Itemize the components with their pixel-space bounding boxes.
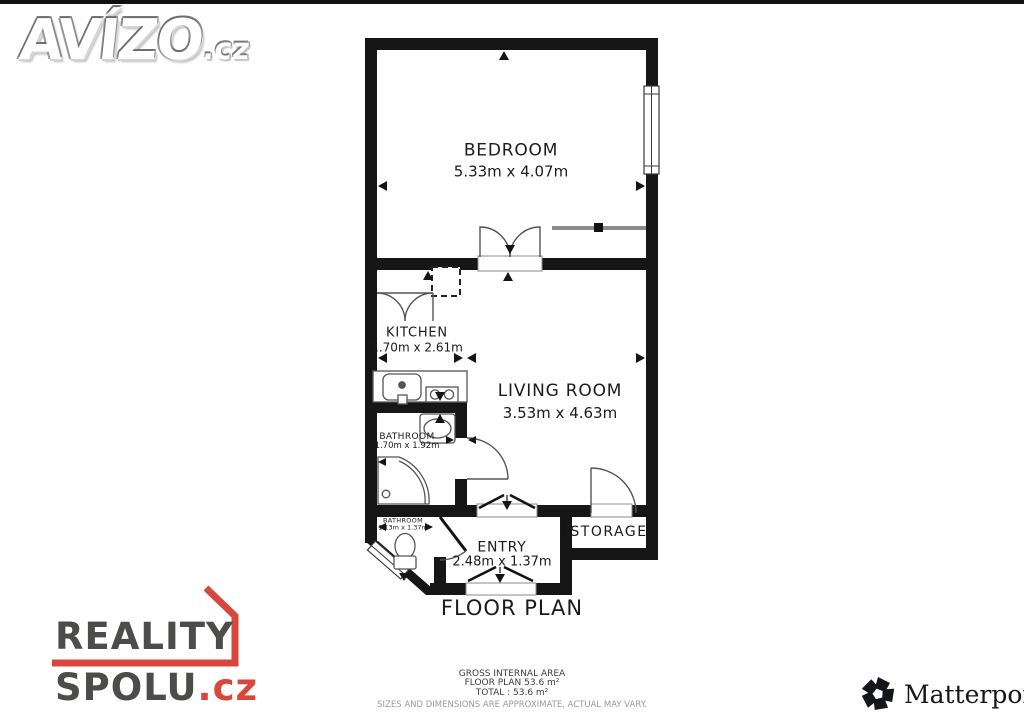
- avizo-logo-text: AVÍZO: [17, 8, 206, 73]
- room-name: KITCHEN: [371, 327, 463, 342]
- avizo-logo-suffix: .cz: [201, 32, 251, 67]
- room-label-kitchen: KITCHEN 1.70m x 2.61m: [371, 327, 463, 356]
- reality-spolu-logo: REALITY SPOLU.cz: [48, 585, 258, 720]
- matterport-logo: Matterport®: [858, 674, 1024, 714]
- total-area: TOTAL : 53.6 m²: [377, 689, 647, 698]
- bedroom-window: [644, 86, 659, 174]
- reality-spolu-line2: SPOLU.cz: [55, 669, 258, 706]
- room-label-living-room: LIVING ROOM 3.53m x 4.63m: [498, 382, 622, 422]
- avizo-logo: AVÍZO.cz: [17, 8, 254, 73]
- room-dimensions: 2.48m x 1.37m: [452, 556, 551, 571]
- room-label-storage: STORAGE: [570, 524, 647, 540]
- kitchen-dashed-appliance: [432, 267, 460, 296]
- floor-plan-title: FLOOR PLAN: [441, 596, 583, 620]
- matterport-pinwheel-icon: [858, 674, 898, 714]
- room-name: BEDROOM: [454, 142, 568, 162]
- room-label-bathroom: BATHROOM 1.70m x 1.92m: [375, 432, 440, 452]
- room-dimensions: 1.70m x 1.92m: [375, 442, 440, 452]
- room-dimensions: 3.53m x 4.63m: [498, 405, 622, 422]
- matterport-logo-text: Matterport®: [904, 680, 1024, 709]
- area-summary: GROSS INTERNAL AREA FLOOR PLAN 53.6 m² T…: [377, 670, 647, 710]
- room-dimensions: 1.70m x 2.61m: [371, 342, 463, 356]
- room-name: ENTRY: [452, 539, 551, 555]
- room-label-bedroom: BEDROOM 5.33m x 4.07m: [454, 142, 568, 181]
- room-name: LIVING ROOM: [498, 382, 622, 402]
- room-dimensions: 5.33m x 4.07m: [454, 163, 568, 180]
- room-label-bathroom-small: BATHROOM 1.13m x 1.37m: [378, 518, 428, 533]
- bedroom-rail: [552, 223, 646, 232]
- reality-spolu-line1: REALITY: [55, 618, 234, 655]
- toilet: [395, 534, 415, 559]
- disclaimer-text: SIZES AND DIMENSIONS ARE APPROXIMATE, AC…: [377, 701, 647, 710]
- room-label-entry: ENTRY 2.48m x 1.37m: [452, 539, 551, 570]
- reality-spolu-suffix: .cz: [198, 666, 259, 709]
- room-dimensions: 1.13m x 1.37m: [378, 525, 428, 532]
- room-name: STORAGE: [570, 524, 647, 540]
